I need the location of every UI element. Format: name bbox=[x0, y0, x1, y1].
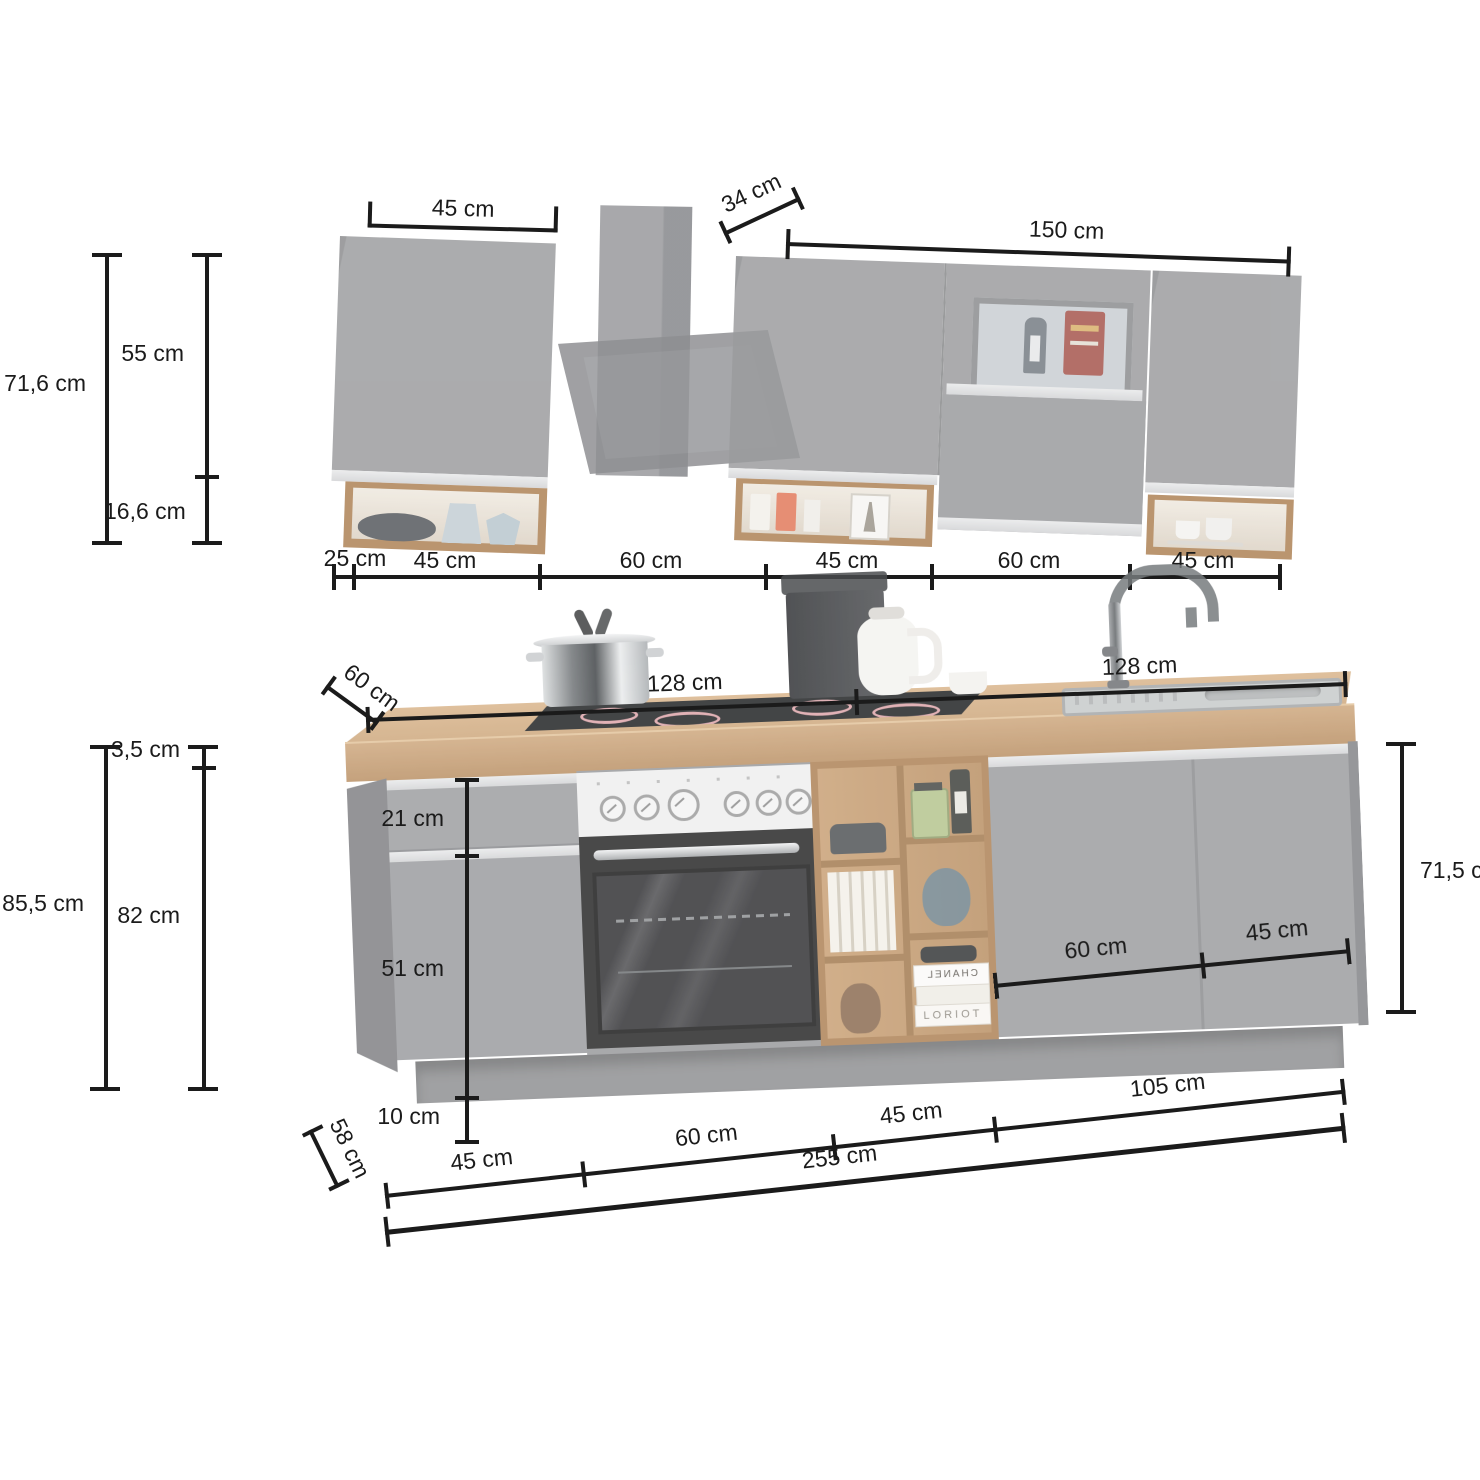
dim-label: 51 cm bbox=[380, 956, 444, 981]
shelf-unit: CHANEL LORIOT bbox=[810, 755, 999, 1046]
pot-handle bbox=[646, 648, 664, 658]
oven-knob bbox=[723, 791, 750, 818]
small-cup bbox=[949, 671, 988, 694]
brown-vase bbox=[840, 983, 882, 1034]
faucet-spout bbox=[1185, 607, 1197, 627]
white-cup bbox=[1175, 521, 1200, 540]
oven-housing bbox=[576, 762, 821, 1055]
oven-knob bbox=[755, 789, 782, 816]
wall-cabinet-left-door bbox=[332, 236, 556, 477]
package-red bbox=[1063, 311, 1105, 376]
dim-label: 25 cm bbox=[318, 546, 392, 571]
dim-label: 45 cm bbox=[405, 548, 485, 573]
open-shelf-box-left bbox=[343, 481, 547, 554]
glass-decanter bbox=[921, 867, 971, 927]
dim-label: 45 cm bbox=[807, 548, 887, 573]
flip-front-door bbox=[938, 394, 1146, 524]
base-run: CHANEL LORIOT bbox=[345, 703, 1371, 1114]
dim-label: 21 cm bbox=[380, 806, 444, 831]
white-candle bbox=[749, 494, 770, 531]
wall-cabinet-left bbox=[329, 236, 556, 559]
sink-door-45 bbox=[1194, 753, 1358, 1029]
oven-window bbox=[592, 864, 816, 1034]
wall-glass-cabinet bbox=[938, 263, 1151, 536]
white-pillar bbox=[803, 500, 820, 533]
jug-handle bbox=[907, 627, 943, 684]
bottle-silhouette bbox=[1030, 335, 1041, 361]
dark-bowl bbox=[357, 512, 436, 543]
dim-label: 45 cm bbox=[368, 194, 559, 224]
wall-door-45-right bbox=[1145, 271, 1301, 488]
stacked-bowls bbox=[830, 822, 887, 854]
oven-knob bbox=[599, 795, 626, 822]
jug-lid bbox=[868, 606, 904, 619]
product-dimension-diagram: 45 cm 34 cm 150 cm 71,6 cm 55 cm 16,6 cm bbox=[0, 0, 1480, 1480]
pot-handle bbox=[526, 652, 544, 662]
dim-label: 71,6 cm bbox=[0, 371, 86, 396]
dim-label: 45 cm bbox=[411, 1140, 553, 1180]
shelf-board bbox=[910, 930, 988, 940]
shelf-board bbox=[821, 858, 900, 868]
coffee-machine bbox=[785, 568, 960, 700]
wall-door-45-left bbox=[729, 256, 947, 475]
plate bbox=[1167, 540, 1243, 547]
eiffel-sketch bbox=[863, 502, 876, 532]
dim-base-depth-bottom: 58 cm bbox=[308, 1129, 340, 1188]
book-row bbox=[827, 870, 896, 952]
dim-top-height-split: 55 cm 16,6 cm bbox=[192, 253, 222, 545]
dim-label: 71,5 cm bbox=[1420, 858, 1480, 883]
dim-front-heights: 21 cm 51 cm 10 cm bbox=[452, 778, 482, 1144]
pickle-jar bbox=[910, 788, 950, 839]
orange-candle bbox=[775, 493, 796, 532]
dim-label: 3,5 cm bbox=[108, 737, 180, 762]
sink-cabinet bbox=[988, 742, 1359, 1040]
oven-control-panel bbox=[576, 764, 812, 837]
dim-label: 10 cm bbox=[376, 1104, 440, 1129]
dim-top-width-left: 45 cm bbox=[368, 196, 559, 233]
shelf-board bbox=[825, 954, 904, 964]
glass-display-window bbox=[970, 297, 1133, 397]
book-spine-text: CHANEL bbox=[925, 964, 978, 986]
dim-base-height-right: 71,5 cm bbox=[1386, 742, 1418, 1014]
oven-knob bbox=[633, 794, 660, 821]
book-spine-text: LORIOT bbox=[915, 1002, 992, 1027]
dim-label: 150 cm bbox=[986, 215, 1147, 246]
dim-label: 55 cm bbox=[118, 341, 184, 366]
wall-unit-run bbox=[726, 256, 1302, 576]
dim-label: 60 cm bbox=[611, 548, 691, 573]
oven-handle bbox=[593, 843, 799, 861]
dim-label: 60 cm bbox=[989, 548, 1069, 573]
dim-label: 60 cm bbox=[635, 1115, 777, 1155]
gray-vase bbox=[485, 512, 520, 545]
open-shelf-box-mid bbox=[734, 478, 934, 547]
oven-knob bbox=[667, 788, 700, 821]
dim-label: 16,6 cm bbox=[104, 499, 184, 524]
picture-frame bbox=[849, 493, 891, 540]
dark-lid-bowl bbox=[920, 945, 977, 963]
faucet-base bbox=[1107, 680, 1129, 689]
book-stack: CHANEL LORIOT bbox=[913, 963, 989, 1028]
sink-door-60 bbox=[988, 759, 1204, 1037]
dim-label: 85,5 cm bbox=[2, 891, 84, 916]
dim-base-height-split: 3,5 cm 82 cm bbox=[188, 745, 220, 1091]
dim-label: 82 cm bbox=[116, 903, 180, 928]
jar-lid bbox=[914, 782, 942, 791]
white-cup bbox=[1205, 518, 1232, 541]
oven-door bbox=[579, 828, 821, 1049]
dim-label: 45 cm bbox=[840, 1093, 982, 1133]
dim-label: 58 cm bbox=[317, 1100, 382, 1197]
oven-knob bbox=[785, 788, 812, 815]
dim-label: 34 cm bbox=[699, 160, 804, 227]
gray-vase bbox=[441, 503, 482, 544]
faucet-arc bbox=[1107, 562, 1219, 625]
